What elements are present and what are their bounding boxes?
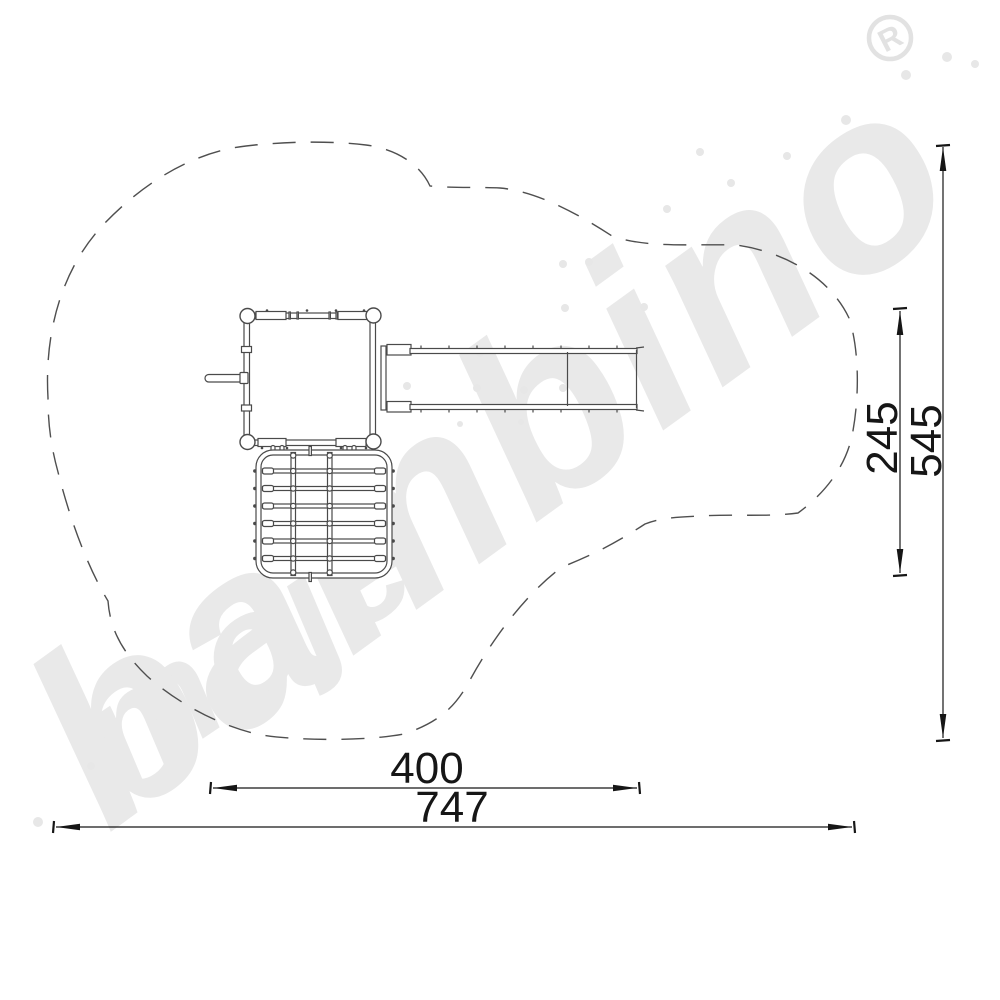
net-frame-tick	[309, 447, 311, 456]
registered-trademark-icon: R	[869, 17, 911, 59]
technical-drawing-page: moje bambino R	[0, 0, 1000, 1000]
slide-mount-plate-bottom	[387, 402, 411, 413]
platform-plate	[336, 439, 366, 447]
edge-bracket	[242, 405, 252, 411]
beam-tick	[336, 312, 337, 319]
end-tick	[936, 145, 950, 146]
platform-edge-right	[370, 315, 376, 442]
corner-post	[240, 309, 255, 324]
arrowhead-down	[897, 549, 904, 573]
climbing-net	[253, 446, 395, 582]
slide-entry-bar	[381, 346, 386, 410]
arrowhead-right	[613, 785, 637, 792]
beam-tick	[329, 312, 330, 319]
dimension-label-245: 245	[858, 401, 907, 474]
arrowhead-right	[828, 824, 852, 831]
end-tick	[53, 821, 54, 833]
beam-tick	[297, 312, 298, 319]
corner-post	[366, 308, 381, 323]
arrowhead-up	[940, 147, 947, 171]
dimension-label-545: 545	[902, 404, 951, 477]
end-tick	[936, 740, 950, 741]
handle-bracket	[240, 373, 248, 384]
slide-mount-plate-top	[387, 345, 411, 356]
platform-plate	[256, 312, 286, 320]
net-frame-tick	[309, 573, 311, 582]
end-tick	[639, 782, 640, 794]
end-tick	[210, 782, 211, 794]
edge-bracket	[242, 347, 252, 353]
arrowhead-left	[56, 824, 80, 831]
slide-rail-top	[410, 349, 637, 354]
watermark-word-bambino: bambino	[0, 23, 1000, 877]
platform-plate	[338, 312, 368, 320]
watermark: moje bambino R	[0, 17, 1000, 877]
playground-top-view-drawing: moje bambino R	[0, 0, 1000, 1000]
end-tick	[854, 821, 855, 833]
corner-post	[366, 434, 381, 449]
dimension-label-747: 747	[415, 783, 488, 832]
arrowhead-down	[940, 714, 947, 738]
end-tick	[893, 575, 907, 576]
corner-post	[240, 435, 255, 450]
beam-tick	[289, 312, 290, 319]
slide-rail-bottom	[410, 405, 637, 410]
end-tick	[893, 308, 907, 309]
